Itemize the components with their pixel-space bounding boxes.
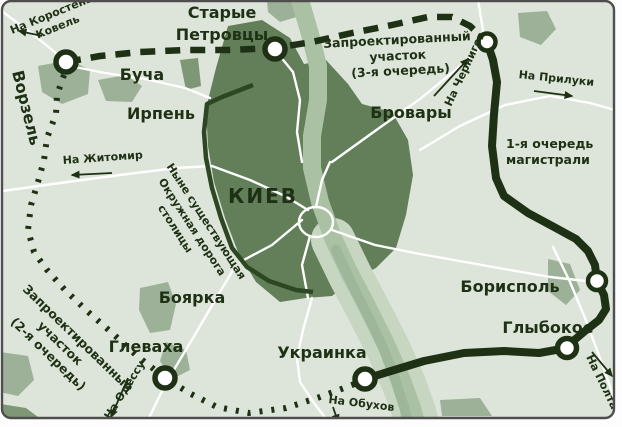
label-glybokoe: Глыбокое (502, 318, 593, 337)
label-starye-petrovtsy-line1: Старые (188, 3, 257, 22)
label-brovary: Бровары (370, 103, 451, 122)
label-first-stage-line1: 1-я очередь (506, 136, 593, 151)
label-ukrainka: Украинка (277, 343, 366, 362)
kyiv-highway-map: Старые Петровцы Буча Ирпень Ворзель Бров… (0, 0, 622, 427)
label-kiev: КИЕВ (228, 184, 298, 208)
label-starye-petrovtsy-line2: Петровцы (176, 25, 268, 44)
label-bucha: Буча (120, 65, 164, 84)
junction-node-glevakha (155, 368, 175, 388)
junction-node-vorzel (56, 52, 76, 72)
junction-node-borispol (588, 272, 606, 290)
label-glevakha: Глеваха (109, 337, 184, 356)
label-first-stage-line2: магистрали (506, 152, 590, 167)
label-borispol: Борисполь (460, 277, 559, 296)
label-irpen: Ирпень (127, 104, 195, 123)
junction-node-ukrainka (355, 369, 375, 389)
junction-node-glybokoe (558, 339, 577, 358)
label-boyarka: Боярка (159, 288, 226, 307)
